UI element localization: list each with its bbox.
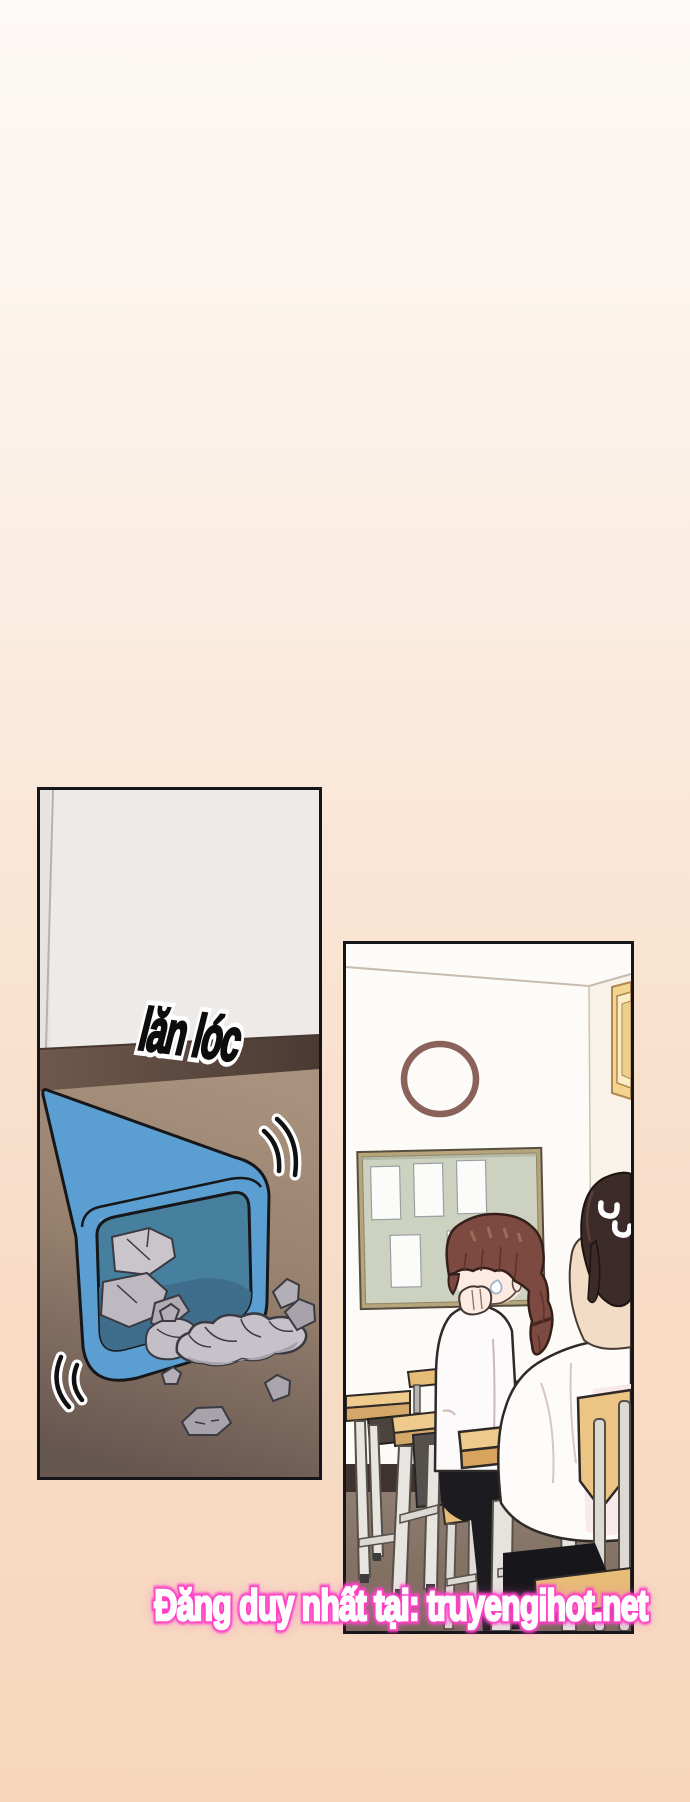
svg-text:lăn lóc: lăn lóc	[133, 996, 249, 1074]
